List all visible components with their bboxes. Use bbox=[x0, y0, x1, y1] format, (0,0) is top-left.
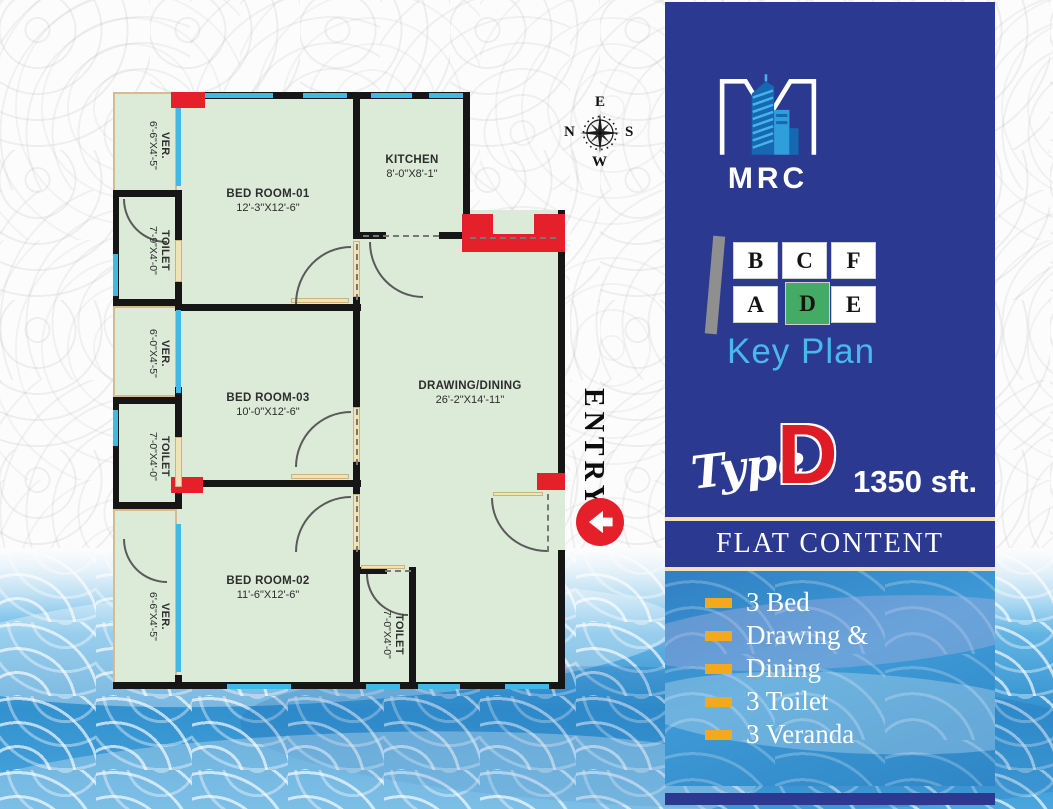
wall-segment bbox=[353, 462, 360, 496]
window bbox=[227, 684, 291, 689]
flyer: VER.6'-6"X4'-5" TOILET7'-9"X4'-0" BED RO… bbox=[0, 0, 1053, 809]
compass-south: S bbox=[625, 124, 633, 141]
window bbox=[303, 93, 347, 98]
wall-segment bbox=[409, 567, 416, 689]
key-plan-block-d-highlighted: D bbox=[785, 282, 830, 325]
dash-bullet-icon bbox=[705, 631, 732, 641]
room-label-toilet-3: TOILET7'-0"X4'-0" bbox=[359, 587, 405, 682]
window bbox=[176, 310, 181, 393]
door-opening-dashed bbox=[356, 409, 358, 465]
room-label-veranda-3: VER.6'-6"X4'-5" bbox=[117, 560, 171, 672]
flat-content-list: 3 Bed Drawing & Dining 3 Toilet 3 Verand… bbox=[705, 586, 868, 751]
door-opening-dashed bbox=[363, 235, 439, 237]
window bbox=[505, 684, 549, 689]
info-panel: MRC B C F A D E Key Plan Type D 1350 sft… bbox=[665, 2, 995, 786]
window bbox=[201, 93, 273, 98]
dash-bullet-icon bbox=[705, 664, 732, 674]
wall-segment bbox=[113, 299, 181, 306]
door-opening-dashed bbox=[385, 570, 411, 572]
red-column bbox=[171, 92, 205, 108]
wall-segment bbox=[175, 282, 182, 306]
wall-segment bbox=[175, 675, 182, 689]
entry-arrow-icon bbox=[576, 498, 624, 546]
door-opening-dashed bbox=[356, 496, 358, 552]
door-sill bbox=[175, 437, 182, 487]
flat-content-band: FLAT CONTENT bbox=[665, 517, 995, 571]
dash-bullet-icon bbox=[705, 730, 732, 740]
list-item: 3 Veranda bbox=[705, 718, 868, 751]
key-plan-block-f: F bbox=[831, 242, 876, 279]
key-plan-block-e: E bbox=[831, 286, 876, 323]
door-sill bbox=[291, 474, 349, 479]
type-letter: D bbox=[777, 406, 838, 503]
room-label-bedroom-3: BED ROOM-0310'-0"X12'-6" bbox=[183, 392, 353, 418]
mrc-logo: MRC bbox=[715, 72, 821, 192]
room-label-toilet-1: TOILET7'-9"X4'-0" bbox=[121, 204, 171, 296]
entry-label: ENTRY bbox=[577, 388, 609, 510]
window bbox=[371, 93, 412, 98]
key-plan-road bbox=[705, 236, 725, 335]
key-plan-title: Key Plan bbox=[727, 332, 875, 372]
panel-bottom-strip bbox=[665, 793, 995, 805]
door-sill bbox=[493, 492, 543, 496]
wall-segment bbox=[558, 550, 565, 689]
wall-segment bbox=[175, 190, 182, 240]
window bbox=[429, 93, 463, 98]
wall-segment bbox=[113, 397, 181, 404]
list-item: 3 Bed bbox=[705, 586, 868, 619]
red-column bbox=[534, 214, 565, 252]
window bbox=[113, 254, 118, 296]
door-opening-dashed bbox=[470, 237, 556, 239]
compass-east: E bbox=[595, 94, 605, 111]
key-plan-block-a: A bbox=[733, 286, 778, 323]
room-label-veranda-1: VER.6'-6"X4'-5" bbox=[117, 104, 171, 186]
window bbox=[418, 684, 460, 689]
wall-segment bbox=[113, 190, 181, 197]
window bbox=[366, 684, 400, 689]
wall-segment bbox=[353, 297, 360, 409]
room-label-drawing-dining: DRAWING/DINING26'-2"X14'-11" bbox=[385, 380, 555, 406]
floor-plan: VER.6'-6"X4'-5" TOILET7'-9"X4'-0" BED RO… bbox=[113, 92, 565, 689]
compass-rose: E N S W bbox=[564, 94, 636, 172]
door-opening-dashed bbox=[547, 494, 549, 552]
type-area: 1350 sft. bbox=[853, 464, 977, 500]
list-item: 3 Toilet bbox=[705, 685, 868, 718]
compass-star-icon bbox=[578, 111, 622, 155]
wall-segment bbox=[175, 387, 182, 437]
door-sill bbox=[175, 240, 182, 282]
window bbox=[176, 104, 181, 186]
compass-north: N bbox=[564, 124, 575, 141]
list-item: Drawing & bbox=[705, 619, 868, 652]
room-label-toilet-2: TOILET7'-0"X4'-0" bbox=[121, 410, 171, 502]
room-label-veranda-2: VER.6'-0"X4'-5" bbox=[117, 314, 171, 392]
room-label-kitchen: KITCHEN8'-0"X8'-1" bbox=[358, 154, 466, 180]
dash-bullet-icon bbox=[705, 697, 732, 707]
window bbox=[113, 410, 118, 446]
compass-west: W bbox=[592, 154, 607, 171]
dash-bullet-icon bbox=[705, 598, 732, 608]
door-sill bbox=[361, 565, 405, 569]
door-opening-dashed bbox=[356, 244, 358, 300]
mrc-logo-text: MRC bbox=[715, 162, 821, 196]
key-plan-block-c: C bbox=[782, 242, 827, 279]
mrc-logo-icon bbox=[715, 72, 821, 160]
red-column bbox=[537, 473, 565, 490]
list-item: Dining bbox=[705, 652, 868, 685]
room-label-bedroom-1: BED ROOM-0112'-3"X12'-6" bbox=[183, 188, 353, 214]
wall-segment bbox=[113, 502, 181, 509]
flat-content-heading: FLAT CONTENT bbox=[716, 528, 944, 560]
window bbox=[176, 524, 181, 672]
room-label-bedroom-2: BED ROOM-0211'-6"X12'-6" bbox=[183, 575, 353, 601]
key-plan-block-b: B bbox=[733, 242, 778, 279]
wall-segment bbox=[175, 304, 361, 311]
floor-fill bbox=[462, 210, 565, 689]
